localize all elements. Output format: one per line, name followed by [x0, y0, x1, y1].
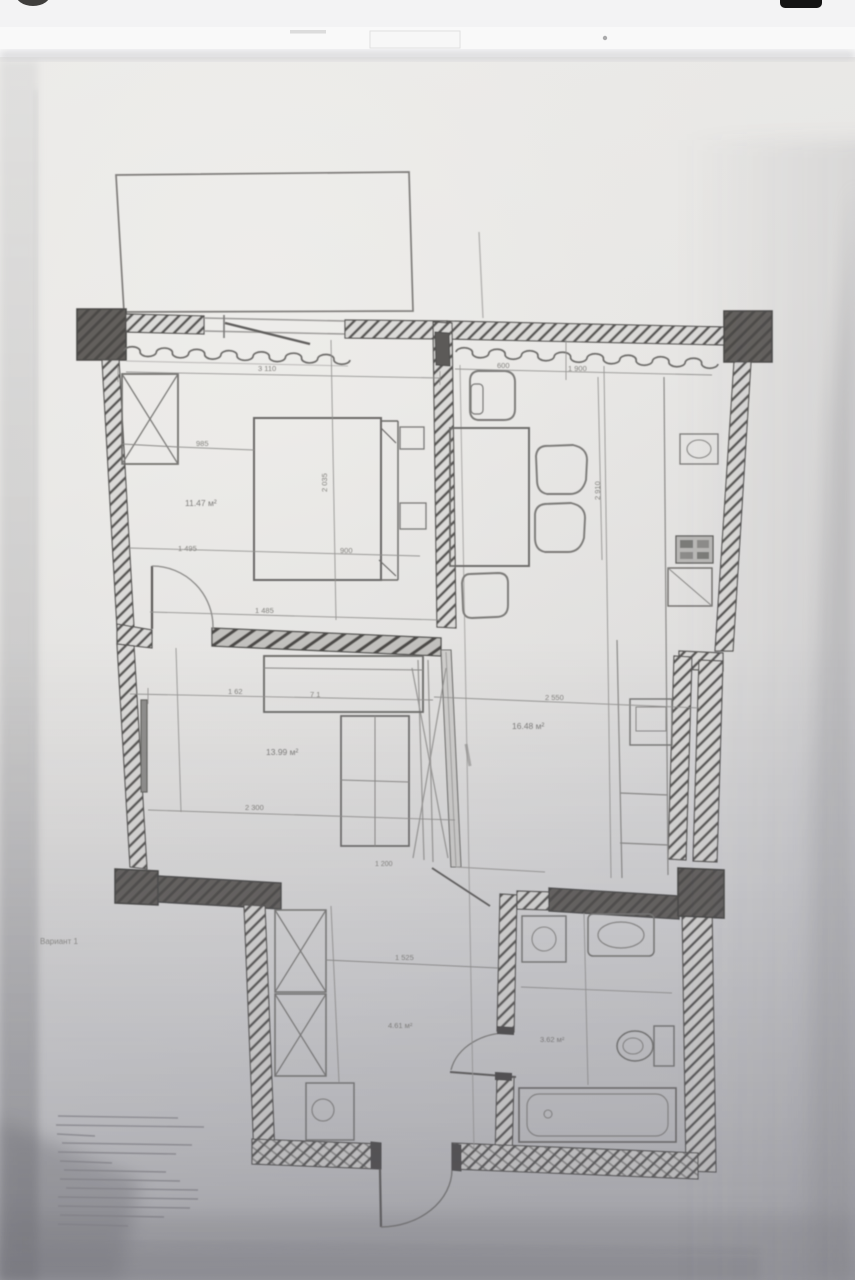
svg-text:2 035: 2 035: [320, 473, 329, 492]
svg-text:985: 985: [196, 439, 209, 448]
svg-text:1 495: 1 495: [178, 544, 197, 553]
svg-text:2 910: 2 910: [593, 481, 602, 500]
svg-text:600: 600: [497, 361, 510, 370]
svg-text:1 900: 1 900: [568, 364, 587, 373]
svg-text:11.47 м²: 11.47 м²: [185, 498, 217, 508]
svg-text:1 485: 1 485: [255, 606, 274, 615]
svg-text:3 110: 3 110: [258, 364, 276, 373]
svg-text:900: 900: [340, 546, 353, 555]
